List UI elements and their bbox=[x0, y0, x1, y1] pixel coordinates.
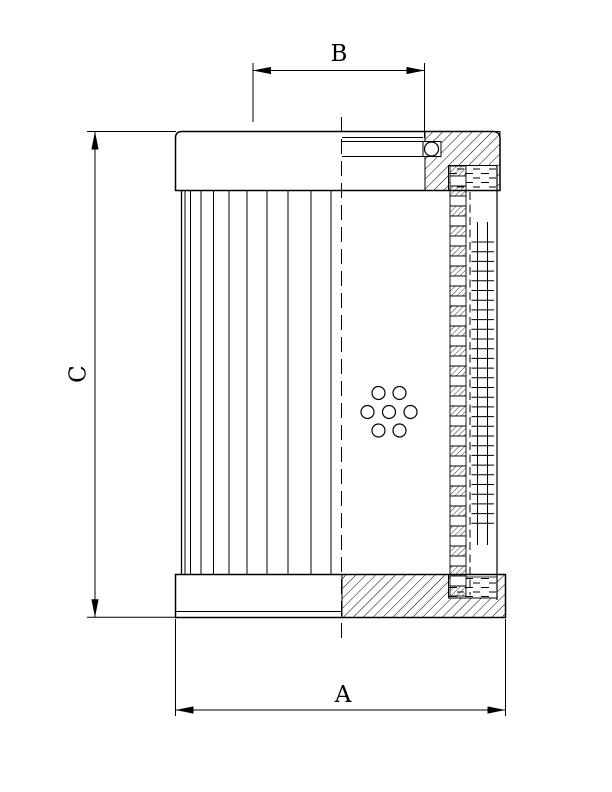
perforation-hole bbox=[361, 406, 374, 419]
core-tube-cell bbox=[450, 206, 466, 216]
perforation-hole bbox=[372, 387, 385, 400]
core-tube-cell bbox=[450, 196, 466, 206]
core-tube-cell bbox=[450, 406, 466, 416]
core-tube-cell bbox=[450, 166, 466, 176]
core-tube-cell bbox=[450, 436, 466, 446]
core-tube-cell bbox=[450, 336, 466, 346]
core-tube-cell bbox=[450, 316, 466, 326]
core-tube-cell bbox=[450, 536, 466, 546]
core-tube-cell bbox=[450, 426, 466, 436]
core-tube-cell bbox=[450, 546, 466, 556]
core-tube-cell bbox=[450, 386, 466, 396]
core-tube-cell bbox=[450, 236, 466, 246]
core-tube-cell bbox=[450, 306, 466, 316]
core-tube-cell bbox=[450, 276, 466, 286]
perforation-hole bbox=[393, 424, 406, 437]
dim-c-label: C bbox=[66, 365, 92, 383]
perforation-hole bbox=[383, 406, 396, 419]
core-tube-cell bbox=[450, 506, 466, 516]
core-tube-cell bbox=[450, 576, 466, 586]
core-tube bbox=[450, 166, 466, 596]
core-tube-cell bbox=[450, 416, 466, 426]
core-tube-cell bbox=[450, 366, 466, 376]
page-background bbox=[0, 0, 612, 792]
core-tube-cell bbox=[450, 296, 466, 306]
core-tube-cell bbox=[450, 526, 466, 536]
perforation-hole bbox=[372, 424, 385, 437]
core-tube-cell bbox=[450, 486, 466, 496]
core-tube-cell bbox=[450, 356, 466, 366]
core-tube-cell bbox=[450, 266, 466, 276]
core-tube-cell bbox=[450, 246, 466, 256]
core-tube-cell bbox=[450, 496, 466, 506]
core-tube-cell bbox=[450, 216, 466, 226]
dim-b-label: B bbox=[331, 41, 348, 67]
core-tube-cell bbox=[450, 346, 466, 356]
perforation-hole bbox=[404, 406, 417, 419]
core-tube-cell bbox=[450, 586, 466, 596]
core-tube-cell bbox=[450, 456, 466, 466]
perforation-hole bbox=[393, 387, 406, 400]
core-tube-cell bbox=[450, 186, 466, 196]
core-tube-cell bbox=[450, 476, 466, 486]
o-ring bbox=[425, 142, 439, 156]
core-tube-cell bbox=[450, 286, 466, 296]
core-tube-cell bbox=[450, 566, 466, 576]
core-tube-cell bbox=[450, 556, 466, 566]
core-tube-cell bbox=[450, 226, 466, 236]
core-tube-cell bbox=[450, 516, 466, 526]
drawing-page: B C A bbox=[0, 0, 612, 792]
core-tube-cell bbox=[450, 256, 466, 266]
core-tube-cell bbox=[450, 396, 466, 406]
core-tube-cell bbox=[450, 326, 466, 336]
core-tube-cell bbox=[450, 176, 466, 186]
dim-a-label: A bbox=[334, 682, 352, 708]
core-tube-cell bbox=[450, 446, 466, 456]
core-tube-cell bbox=[450, 376, 466, 386]
filter-element-drawing: B C A bbox=[0, 0, 612, 792]
core-tube-cell bbox=[450, 466, 466, 476]
